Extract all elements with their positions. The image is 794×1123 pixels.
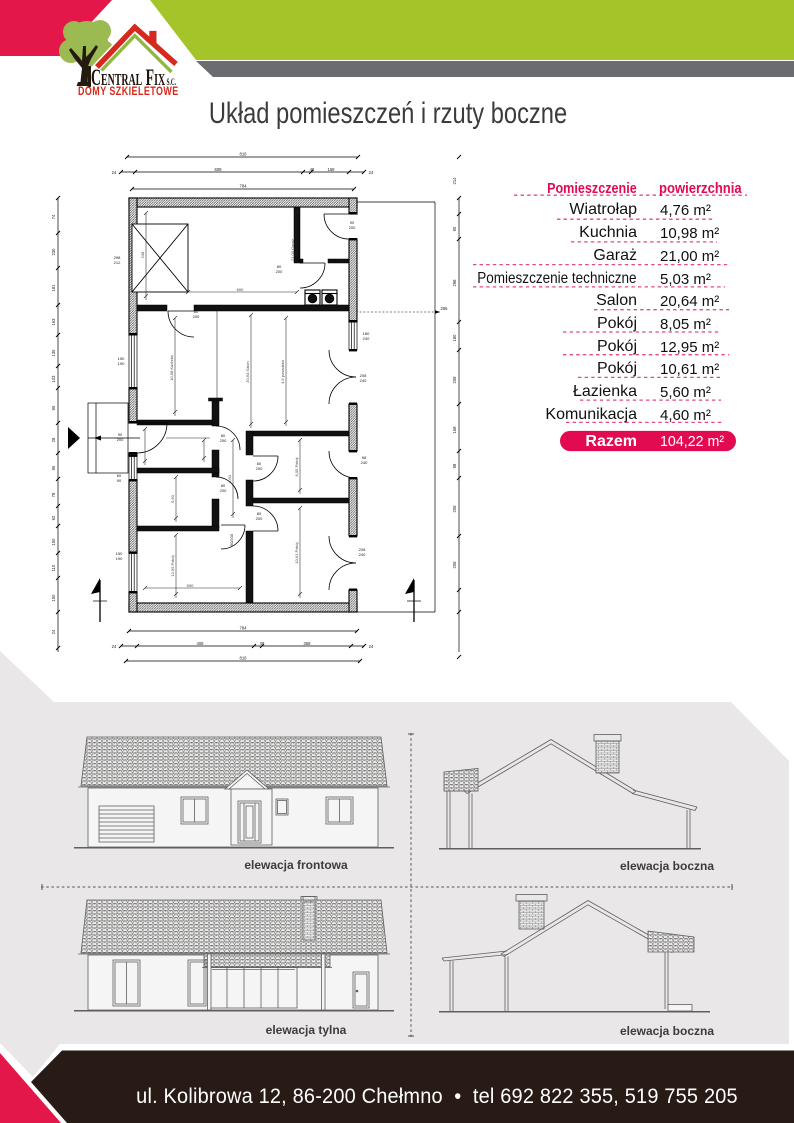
svg-text:208: 208 xyxy=(452,505,457,513)
svg-text:95: 95 xyxy=(51,405,56,410)
svg-text:48: 48 xyxy=(310,167,315,172)
svg-text:590: 590 xyxy=(187,583,194,588)
svg-text:8,05 Pokój: 8,05 Pokój xyxy=(294,457,299,476)
svg-text:24: 24 xyxy=(369,170,374,175)
svg-text:110: 110 xyxy=(51,564,56,571)
svg-text:181: 181 xyxy=(51,284,56,292)
svg-text:24: 24 xyxy=(112,170,117,175)
svg-text:240: 240 xyxy=(359,552,366,557)
svg-text:90/200: 90/200 xyxy=(229,533,234,546)
svg-text:256: 256 xyxy=(441,306,449,311)
svg-text:816: 816 xyxy=(240,152,248,157)
svg-text:103: 103 xyxy=(51,375,56,383)
svg-text:90: 90 xyxy=(117,478,122,483)
svg-text:98: 98 xyxy=(452,463,457,468)
svg-text:200: 200 xyxy=(256,466,263,471)
svg-text:95: 95 xyxy=(51,465,56,470)
svg-text:784: 784 xyxy=(240,184,248,189)
svg-text:24: 24 xyxy=(51,629,56,634)
svg-text:180: 180 xyxy=(452,334,457,342)
svg-text:214: 214 xyxy=(452,177,457,185)
svg-text:200: 200 xyxy=(117,437,124,442)
svg-text:240: 240 xyxy=(361,460,368,465)
svg-text:200: 200 xyxy=(276,269,283,274)
svg-text:190: 190 xyxy=(118,361,125,366)
svg-text:230: 230 xyxy=(51,248,56,256)
svg-text:28: 28 xyxy=(51,437,56,442)
svg-text:4,9 posadzka: 4,9 posadzka xyxy=(280,359,285,384)
svg-text:190: 190 xyxy=(116,556,123,561)
svg-text:784: 784 xyxy=(240,626,248,631)
svg-text:74: 74 xyxy=(51,214,56,219)
svg-text:10,61 Pokój: 10,61 Pokój xyxy=(294,542,299,563)
svg-text:298: 298 xyxy=(452,279,457,287)
svg-text:90: 90 xyxy=(452,226,457,231)
svg-text:208: 208 xyxy=(452,561,457,569)
svg-text:150: 150 xyxy=(51,538,56,546)
svg-text:78: 78 xyxy=(51,492,56,497)
svg-text:12,95 Pokój: 12,95 Pokój xyxy=(170,555,175,576)
svg-text:200: 200 xyxy=(220,488,227,493)
svg-text:600: 600 xyxy=(237,287,244,292)
svg-text:200: 200 xyxy=(256,516,263,521)
svg-text:608: 608 xyxy=(215,167,223,172)
svg-text:200: 200 xyxy=(220,438,227,443)
svg-text:158: 158 xyxy=(328,167,336,172)
svg-text:240: 240 xyxy=(360,378,367,383)
svg-text:21,00 Garaż: 21,00 Garaż xyxy=(290,239,295,261)
svg-text:168: 168 xyxy=(452,426,457,434)
svg-text:4,60: 4,60 xyxy=(227,474,232,483)
svg-text:10,98 Kuchnia: 10,98 Kuchnia xyxy=(169,354,174,380)
svg-text:5,60: 5,60 xyxy=(170,494,175,503)
svg-text:163: 163 xyxy=(51,318,56,326)
svg-text:150: 150 xyxy=(51,594,56,602)
svg-text:135: 135 xyxy=(51,349,56,357)
svg-text:240: 240 xyxy=(363,336,370,341)
svg-text:238: 238 xyxy=(140,251,145,258)
svg-text:200: 200 xyxy=(349,225,356,230)
svg-text:92: 92 xyxy=(51,515,56,520)
svg-text:20,64 Salon: 20,64 Salon xyxy=(245,361,250,382)
svg-text:208: 208 xyxy=(452,376,457,384)
svg-text:200: 200 xyxy=(193,314,200,319)
svg-text:212: 212 xyxy=(114,260,121,265)
